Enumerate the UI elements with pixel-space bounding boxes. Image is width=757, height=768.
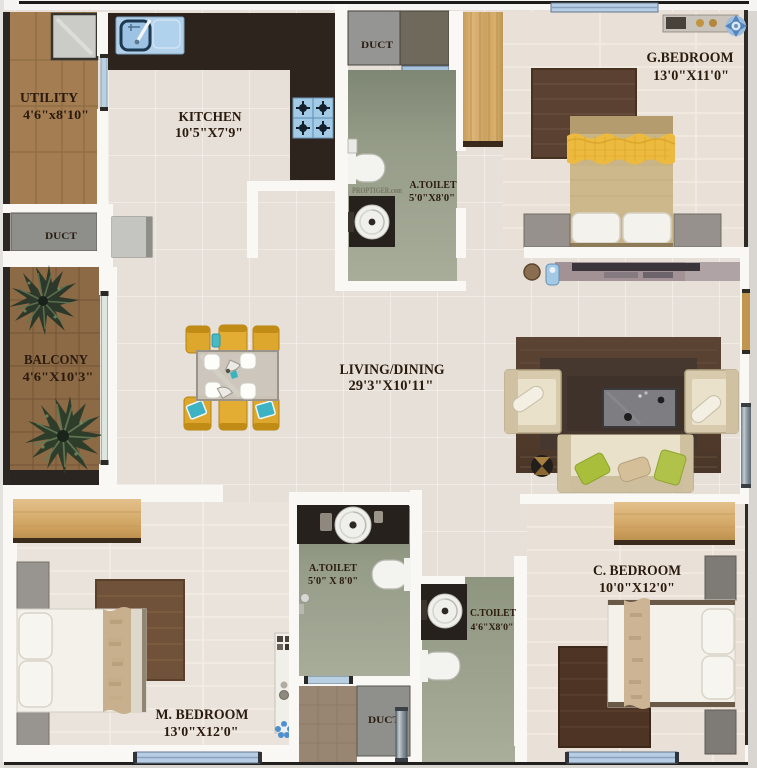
svg-text:10'5"X7'9": 10'5"X7'9" <box>175 125 243 140</box>
svg-text:13'0"X12'0": 13'0"X12'0" <box>164 725 239 740</box>
svg-text:4'6"x8'10": 4'6"x8'10" <box>23 107 89 122</box>
svg-text:5'0" X 8'0": 5'0" X 8'0" <box>308 576 358 587</box>
svg-text:A.TOILET: A.TOILET <box>410 180 457 191</box>
svg-text:29'3"X10'11": 29'3"X10'11" <box>349 378 434 394</box>
svg-text:LIVING/DINING: LIVING/DINING <box>340 362 445 378</box>
svg-text:DUCT: DUCT <box>361 41 394 51</box>
svg-text:BALCONY: BALCONY <box>24 352 88 367</box>
svg-text:DUCT: DUCT <box>45 232 78 242</box>
svg-text:A.TOILET: A.TOILET <box>309 563 357 574</box>
svg-text:C.TOILET: C.TOILET <box>470 608 516 619</box>
svg-text:C. BEDROOM: C. BEDROOM <box>593 563 681 579</box>
svg-text:4'6"X8'0": 4'6"X8'0" <box>471 623 514 633</box>
svg-text:KITCHEN: KITCHEN <box>179 110 242 125</box>
svg-text:10'0"X12'0": 10'0"X12'0" <box>599 581 675 596</box>
svg-text:UTILITY: UTILITY <box>20 90 78 105</box>
svg-text:4'6"X10'3": 4'6"X10'3" <box>23 369 94 384</box>
svg-text:5'0"X8'0": 5'0"X8'0" <box>409 193 455 204</box>
svg-text:PROPTIGER.com: PROPTIGER.com <box>352 186 402 195</box>
svg-text:M. BEDROOM: M. BEDROOM <box>156 707 249 723</box>
svg-text:G.BEDROOM: G.BEDROOM <box>647 50 734 66</box>
svg-text:13'0"X11'0": 13'0"X11'0" <box>653 68 729 84</box>
